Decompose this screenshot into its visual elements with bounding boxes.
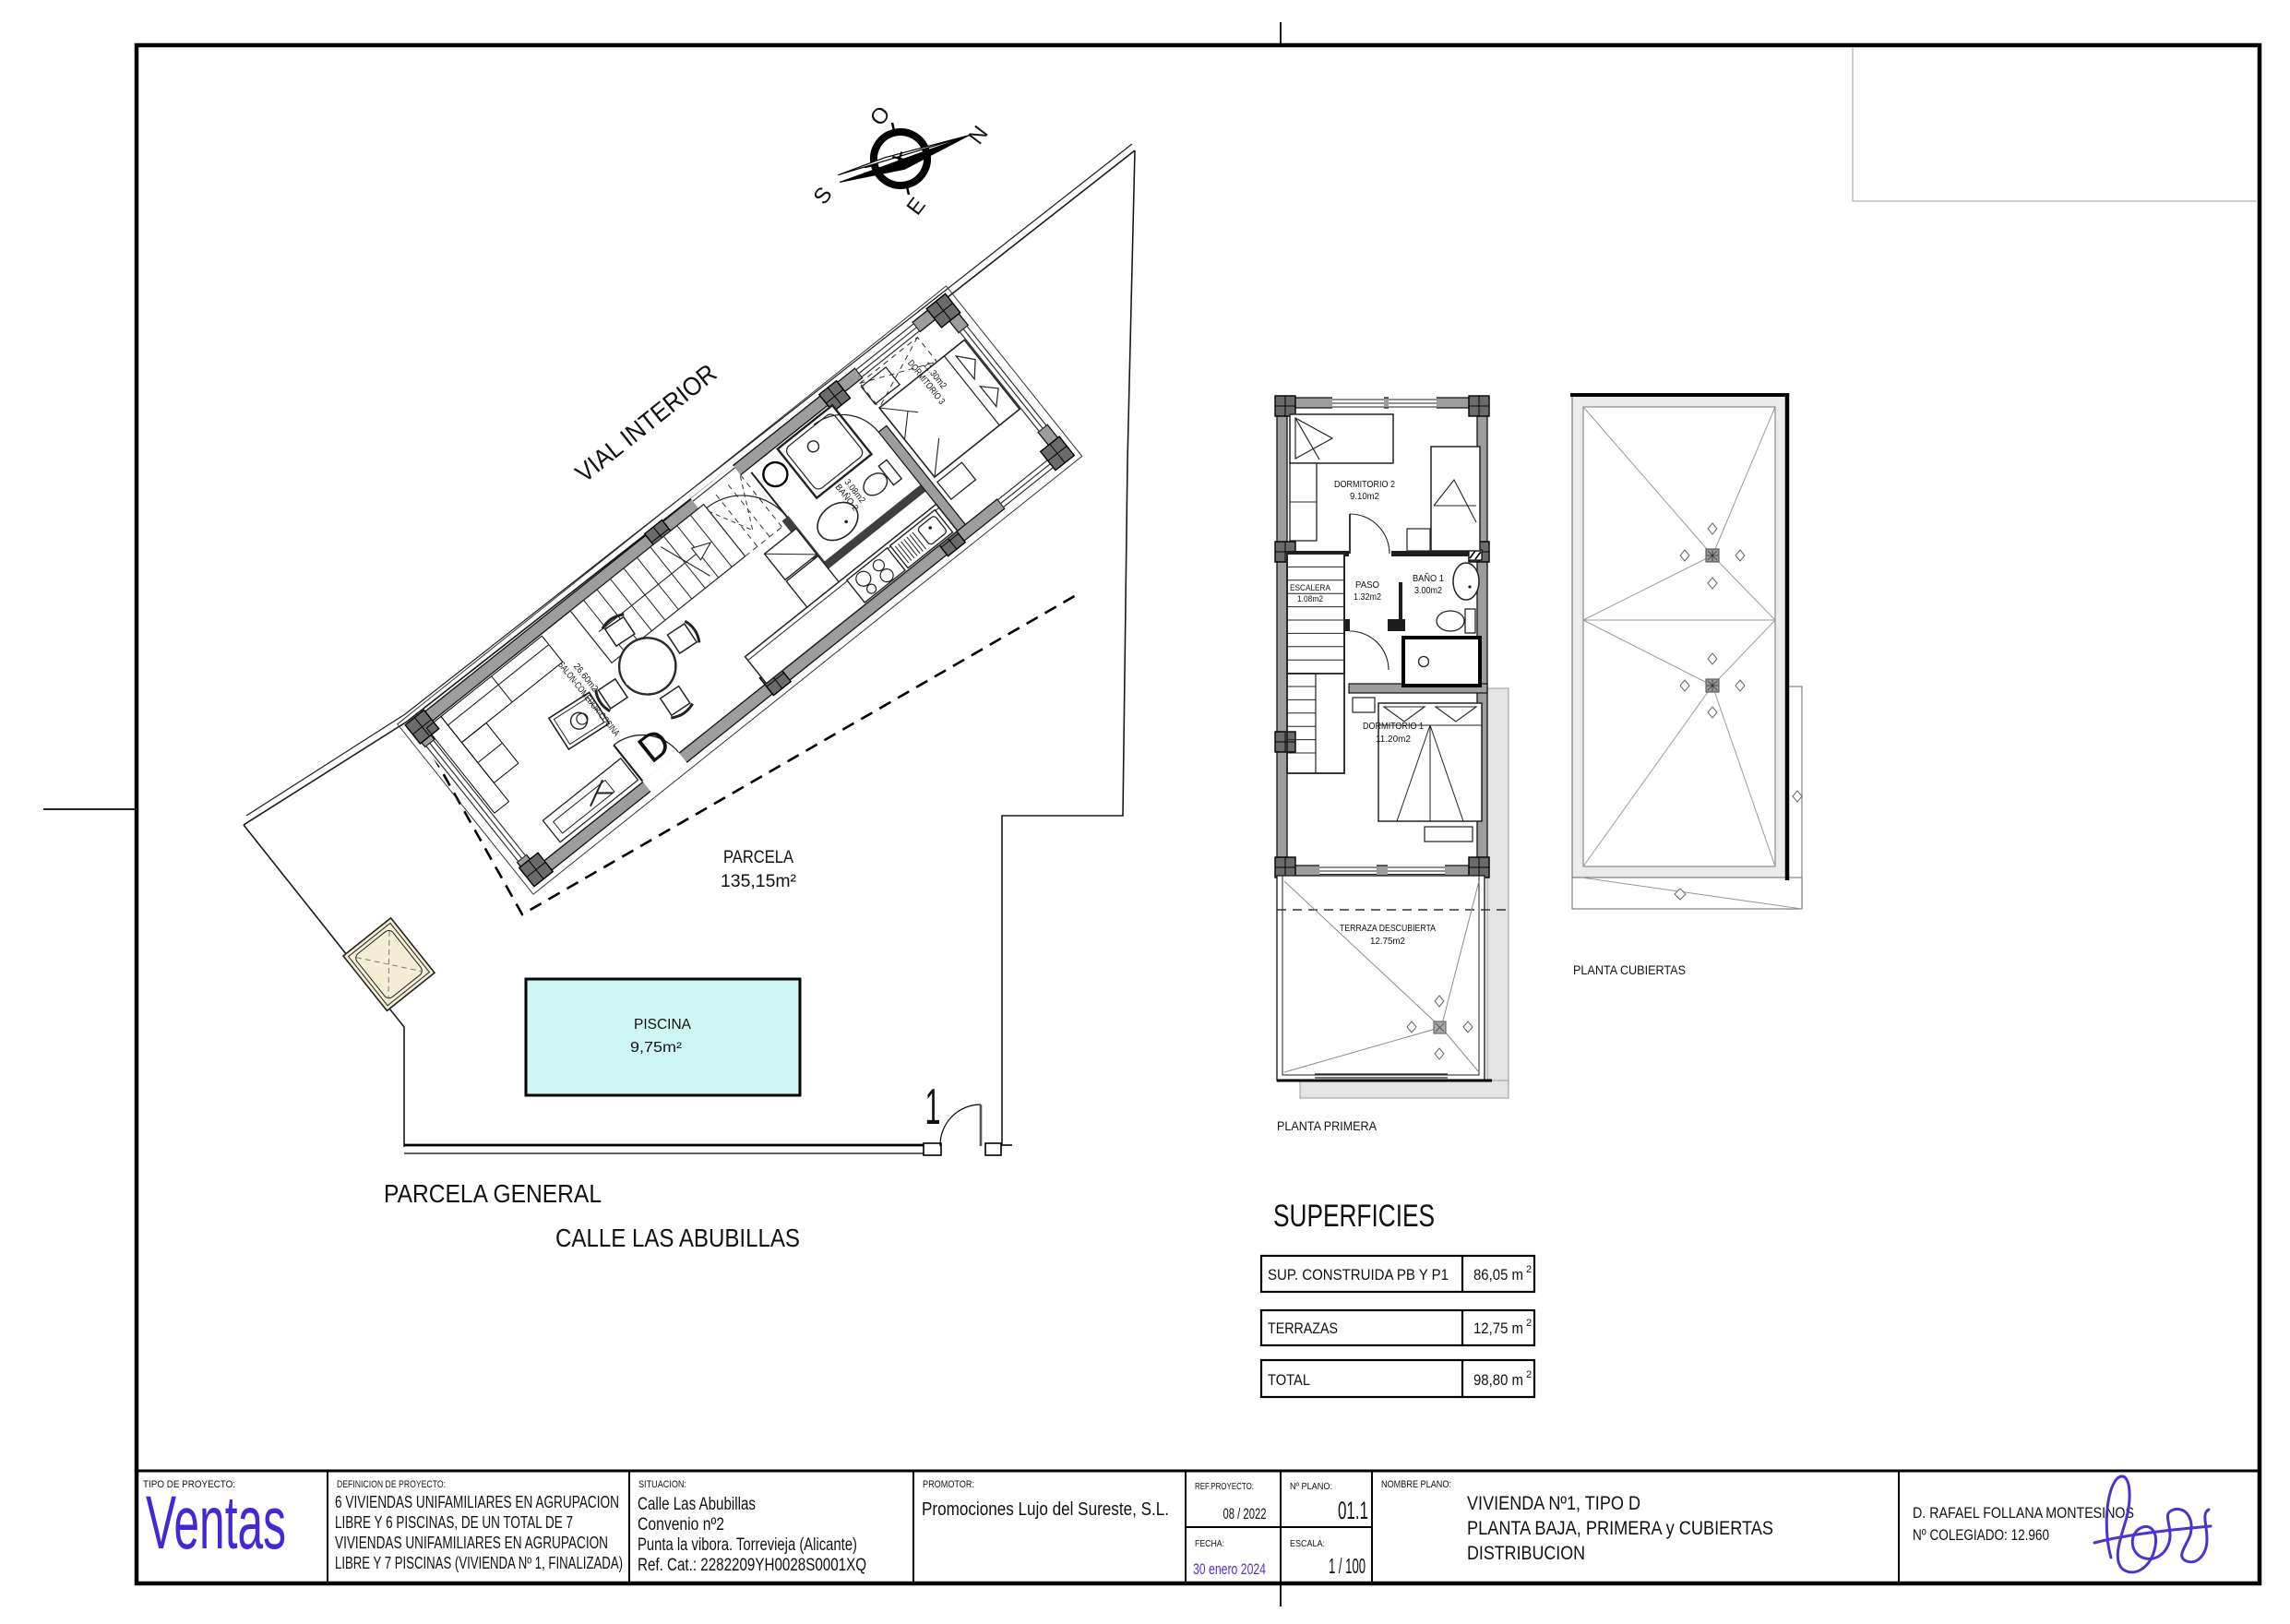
svg-text:VIVIENDA Nº1, TIPO D: VIVIENDA Nº1, TIPO D (1467, 1493, 1640, 1514)
svg-text:2: 2 (1526, 1369, 1532, 1380)
svg-text:Punta la vibora. Torrevieja (A: Punta la vibora. Torrevieja (Alicante) (638, 1535, 857, 1555)
svg-text:12,75 m: 12,75 m (1473, 1320, 1523, 1337)
svg-text:ESCALERA: ESCALERA (1290, 583, 1331, 593)
svg-text:6 VIVIENDAS UNIFAMILIARES EN A: 6 VIVIENDAS UNIFAMILIARES EN AGRUPACION (335, 1493, 619, 1511)
svg-text:30 enero 2024: 30 enero 2024 (1193, 1560, 1266, 1578)
svg-text:CALLE LAS ABUBILLAS: CALLE LAS ABUBILLAS (555, 1224, 800, 1252)
svg-text:ESCALA:: ESCALA: (1290, 1538, 1325, 1549)
svg-text:TERRAZA DESCUBIERTA: TERRAZA DESCUBIERTA (1340, 923, 1436, 934)
svg-text:Ref. Cat.: 2282209YH0028S0001X: Ref. Cat.: 2282209YH0028S0001XQ (638, 1556, 866, 1575)
svg-text:2: 2 (1526, 1264, 1532, 1275)
svg-text:08 / 2022: 08 / 2022 (1223, 1506, 1267, 1522)
svg-text:PLANTA PRIMERA: PLANTA PRIMERA (1277, 1119, 1377, 1133)
svg-text:DISTRIBUCION: DISTRIBUCION (1467, 1543, 1585, 1564)
svg-text:PARCELA: PARCELA (723, 848, 793, 867)
svg-text:1 / 100: 1 / 100 (1329, 1554, 1366, 1578)
svg-text:3.00m2: 3.00m2 (1414, 586, 1442, 596)
svg-text:86,05 m: 86,05 m (1473, 1267, 1523, 1284)
svg-text:9.10m2: 9.10m2 (1350, 491, 1379, 502)
svg-text:98,80 m: 98,80 m (1473, 1372, 1523, 1389)
svg-text:LIBRE Y 7 PISCINAS (VIVIENDA N: LIBRE Y 7 PISCINAS (VIVIENDA Nº 1, FINAL… (335, 1554, 623, 1572)
svg-text:Convenio nº2: Convenio nº2 (638, 1515, 724, 1534)
svg-text:PLANTA CUBIERTAS: PLANTA CUBIERTAS (1573, 963, 1686, 977)
svg-text:SITUACION:: SITUACION: (638, 1479, 686, 1490)
svg-text:PASO: PASO (1355, 580, 1379, 591)
svg-text:1.08m2: 1.08m2 (1297, 594, 1323, 604)
svg-text:PROMOTOR:: PROMOTOR: (923, 1479, 974, 1490)
svg-text:Calle Las Abubillas: Calle Las Abubillas (638, 1495, 756, 1514)
svg-text:FECHA:: FECHA: (1195, 1538, 1224, 1549)
svg-text:9,75m²: 9,75m² (630, 1040, 682, 1056)
svg-text:Nº PLANO:: Nº PLANO: (1290, 1481, 1332, 1492)
svg-text:DEFINICION DE PROYECTO:: DEFINICION DE PROYECTO: (337, 1479, 446, 1490)
svg-text:SUPERFICIES: SUPERFICIES (1273, 1199, 1435, 1234)
svg-text:DORMITORIO 2: DORMITORIO 2 (1334, 479, 1395, 490)
svg-text:1: 1 (925, 1078, 941, 1135)
svg-text:TERRAZAS: TERRAZAS (1268, 1320, 1338, 1337)
svg-text:11.20m2: 11.20m2 (1376, 734, 1411, 745)
svg-text:2: 2 (1526, 1318, 1532, 1329)
svg-text:NOMBRE PLANO:: NOMBRE PLANO: (1381, 1479, 1451, 1490)
svg-text:TOTAL: TOTAL (1268, 1372, 1310, 1389)
svg-text:SUP. CONSTRUIDA PB Y P1: SUP. CONSTRUIDA PB Y P1 (1268, 1267, 1449, 1284)
svg-text:Ventas: Ventas (146, 1481, 286, 1565)
svg-text:VIVIENDAS UNIFAMILIARES EN AGR: VIVIENDAS UNIFAMILIARES EN AGRUPACION (335, 1534, 608, 1552)
svg-text:REF.PROYECTO:: REF.PROYECTO: (1195, 1481, 1254, 1492)
svg-text:PARCELA GENERAL: PARCELA GENERAL (384, 1179, 602, 1208)
svg-text:1.32m2: 1.32m2 (1354, 592, 1381, 603)
svg-text:BAÑO 1: BAÑO 1 (1413, 572, 1444, 584)
svg-text:01.1: 01.1 (1338, 1497, 1368, 1524)
svg-text:Nº COLEGIADO: 12.960: Nº COLEGIADO: 12.960 (1913, 1526, 2049, 1544)
svg-text:PLANTA BAJA, PRIMERA y CUBIERT: PLANTA BAJA, PRIMERA y CUBIERTAS (1467, 1518, 1773, 1539)
svg-text:PISCINA: PISCINA (634, 1017, 692, 1033)
svg-text:12.75m2: 12.75m2 (1370, 936, 1405, 947)
svg-text:Promociones Lujo del Sureste,: Promociones Lujo del Sureste, S.L. (922, 1499, 1169, 1520)
svg-text:D. RAFAEL FOLLANA MONTESINOS: D. RAFAEL FOLLANA MONTESINOS (1913, 1504, 2134, 1522)
svg-text:DORMITORIO 1: DORMITORIO 1 (1363, 721, 1424, 732)
svg-text:135,15m²: 135,15m² (721, 872, 796, 891)
svg-text:LIBRE Y 6 PISCINAS, DE UN TOTA: LIBRE Y 6 PISCINAS, DE UN TOTAL DE 7 (335, 1513, 573, 1532)
